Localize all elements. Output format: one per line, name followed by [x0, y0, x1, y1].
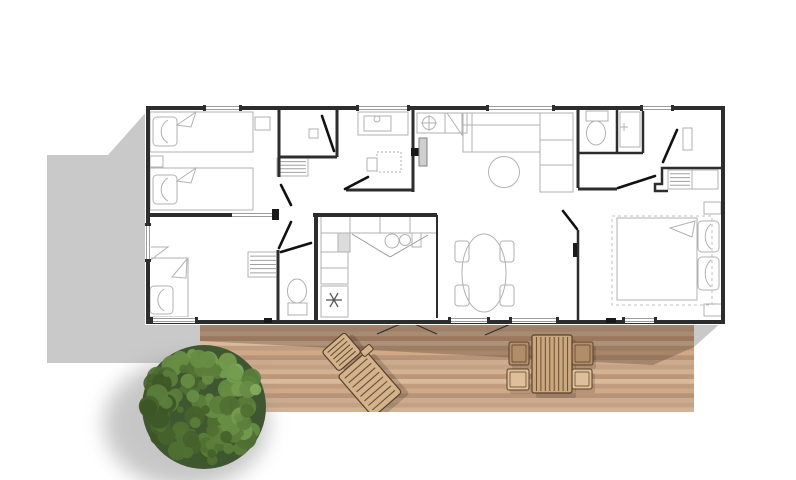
tree-foliage-blob	[182, 447, 193, 458]
window-jamb	[203, 105, 206, 111]
window-jamb	[407, 105, 410, 111]
window-jamb	[671, 105, 674, 111]
window-jamb	[654, 317, 657, 323]
window	[511, 317, 557, 323]
snowflake-icon-center	[333, 299, 336, 302]
window	[145, 225, 151, 260]
tree-foliage-blob	[177, 406, 184, 413]
tree-foliage-blob	[240, 404, 254, 418]
tree-foliage-blob	[223, 443, 234, 454]
window	[488, 105, 553, 111]
window	[152, 317, 196, 323]
window-jamb	[552, 105, 555, 111]
deck-plank	[200, 403, 694, 408]
window-jamb	[640, 105, 643, 111]
wall-mark	[264, 318, 272, 323]
wall-mark	[573, 243, 577, 257]
floorplan-image	[0, 0, 796, 480]
window	[358, 105, 408, 111]
tree-foliage-blob	[234, 413, 243, 422]
tree-foliage-blob	[163, 370, 170, 377]
window-jamb	[556, 317, 559, 323]
kitchen-sink	[338, 233, 350, 252]
deck-plank	[200, 389, 694, 394]
tree-foliage-blob	[206, 424, 219, 437]
entrance-door-leaf	[419, 138, 427, 166]
deck-plank	[200, 379, 694, 384]
deck-plank	[200, 408, 694, 413]
deck	[200, 322, 694, 422]
floor-plan-svg	[0, 0, 796, 480]
window-jamb	[487, 317, 490, 323]
tree-foliage-blob	[220, 431, 232, 443]
window-jamb	[145, 223, 151, 226]
window-jamb	[622, 317, 625, 323]
window-jamb	[150, 317, 153, 323]
tree-foliage-blob	[250, 384, 261, 395]
deck-plank	[200, 370, 694, 375]
window-jamb	[486, 105, 489, 111]
window-jamb	[195, 317, 198, 323]
tree-foliage-blob	[207, 449, 216, 458]
deck-plank	[200, 374, 694, 379]
tree-foliage-blob	[199, 352, 215, 368]
wall-mark	[272, 209, 279, 220]
window-jamb	[145, 259, 151, 262]
window	[205, 105, 240, 111]
window-jamb	[356, 105, 359, 111]
deck-table	[532, 335, 572, 393]
tree-foliage-blob	[190, 417, 201, 428]
tree-foliage-blob	[187, 390, 200, 403]
building	[145, 105, 726, 325]
tree-foliage-blob	[179, 365, 187, 373]
window-jamb	[448, 317, 451, 323]
deck-plank	[200, 384, 694, 389]
tree-foliage-blob	[139, 399, 157, 417]
tree-foliage-blob	[179, 386, 186, 393]
window	[624, 317, 655, 323]
window-jamb	[239, 105, 242, 111]
window	[450, 317, 488, 323]
wall-mark	[606, 318, 616, 323]
tree-foliage-blob	[225, 366, 242, 383]
deck-plank	[200, 398, 694, 403]
wall-mark	[411, 148, 419, 156]
deck-plank	[200, 365, 694, 370]
window-jamb	[509, 317, 512, 323]
deck-plank	[200, 393, 694, 398]
window	[642, 105, 672, 111]
